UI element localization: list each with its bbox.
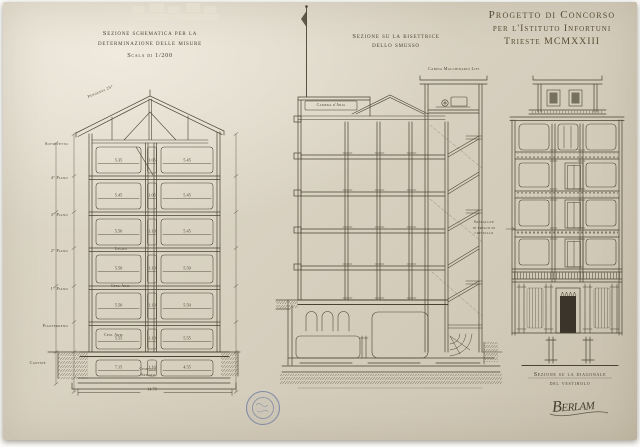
dim-value: 7.15 bbox=[115, 365, 123, 370]
floor-label-pianterreno: Pianterreno bbox=[18, 324, 68, 329]
right-section-title-line1: Sezione su la diagonale bbox=[506, 371, 634, 378]
middle-section-drawing bbox=[276, 5, 502, 388]
dim-value: 1.10 bbox=[148, 266, 156, 271]
left-section-drawing bbox=[48, 90, 240, 396]
sheet-title-line3: Trieste MCMXXIII bbox=[476, 36, 628, 47]
right-section-drawing bbox=[506, 76, 624, 378]
total-width-value: 14.70 bbox=[147, 387, 157, 392]
dim-value: 5.50 bbox=[115, 229, 123, 234]
floor-label-1piano: 1° Piano bbox=[18, 287, 68, 292]
middle-section-title-line1: Sezione su la bisettrice bbox=[338, 33, 454, 41]
dim-value: 1.10 bbox=[148, 303, 156, 308]
dim-value: 5.45 bbox=[183, 158, 191, 163]
skylight-label-line3: cristallo bbox=[462, 231, 506, 237]
floor-label-3piano: 3° Piano bbox=[18, 213, 68, 218]
dim-value: 5.35 bbox=[115, 158, 123, 163]
dim-value: 5.50 bbox=[115, 303, 123, 308]
floor-label-4piano: 4° Piano bbox=[18, 176, 68, 181]
dim-value: 5.50 bbox=[183, 266, 191, 271]
scanned-drawing-sheet: 5.35 1.05 5.45 5.45 1.05 5.45 5.50 1.10 … bbox=[0, 0, 640, 447]
dim-value: 1.05 bbox=[148, 193, 156, 198]
sheet-title-line2: per l'Istituto Infortuni bbox=[476, 23, 628, 34]
slab-material-concrete-label-upper: Cem. Arm. bbox=[103, 284, 139, 290]
floor-label-sottotetto: Sottotetto bbox=[18, 142, 68, 147]
dim-value: 5.50 bbox=[115, 266, 123, 271]
dim-value: 1.05 bbox=[148, 158, 156, 163]
floor-label-2piano: 2° Piano bbox=[18, 249, 68, 254]
skylight-label: Sopraluce in fregio di cristallo bbox=[462, 220, 506, 237]
middle-section-title-line2: dello smusso bbox=[338, 42, 454, 50]
left-section-title-line1: Sezione schematica per la bbox=[84, 30, 216, 38]
right-section-title-line2: del vestibolo bbox=[506, 380, 634, 387]
dim-value: 5.45 bbox=[183, 229, 191, 234]
paper-watermark bbox=[132, 3, 218, 20]
slab-material-concrete-label-lower: Cem. Arm. bbox=[96, 333, 132, 339]
dim-value: 1.10 bbox=[148, 336, 156, 341]
dim-value: 5.50 bbox=[183, 303, 191, 308]
dim-value: 1.10 bbox=[148, 229, 156, 234]
dim-value: 4.55 bbox=[183, 365, 191, 370]
air-chamber-label: Camera d'Aria bbox=[305, 103, 357, 109]
dim-value: 5.45 bbox=[183, 193, 191, 198]
dim-value: 5.55 bbox=[183, 336, 191, 341]
left-section-scale-note: Scala di 1/200 bbox=[84, 52, 216, 59]
sheet-title-line1: Progetto di Concorso bbox=[476, 9, 628, 22]
ink-stamp bbox=[247, 392, 280, 425]
dim-value: 5.45 bbox=[115, 193, 123, 198]
foundation-material-line2: Armato bbox=[126, 373, 170, 379]
slab-material-wood-label: Legno bbox=[106, 247, 136, 253]
foundation-material-line1: Cemento bbox=[126, 367, 170, 373]
lift-cabin-label: Cabina Macchinario Lift bbox=[410, 67, 498, 72]
floor-label-cantine: Cantine bbox=[14, 361, 46, 366]
left-section-title-line2: determinazione delle misure bbox=[84, 40, 216, 48]
